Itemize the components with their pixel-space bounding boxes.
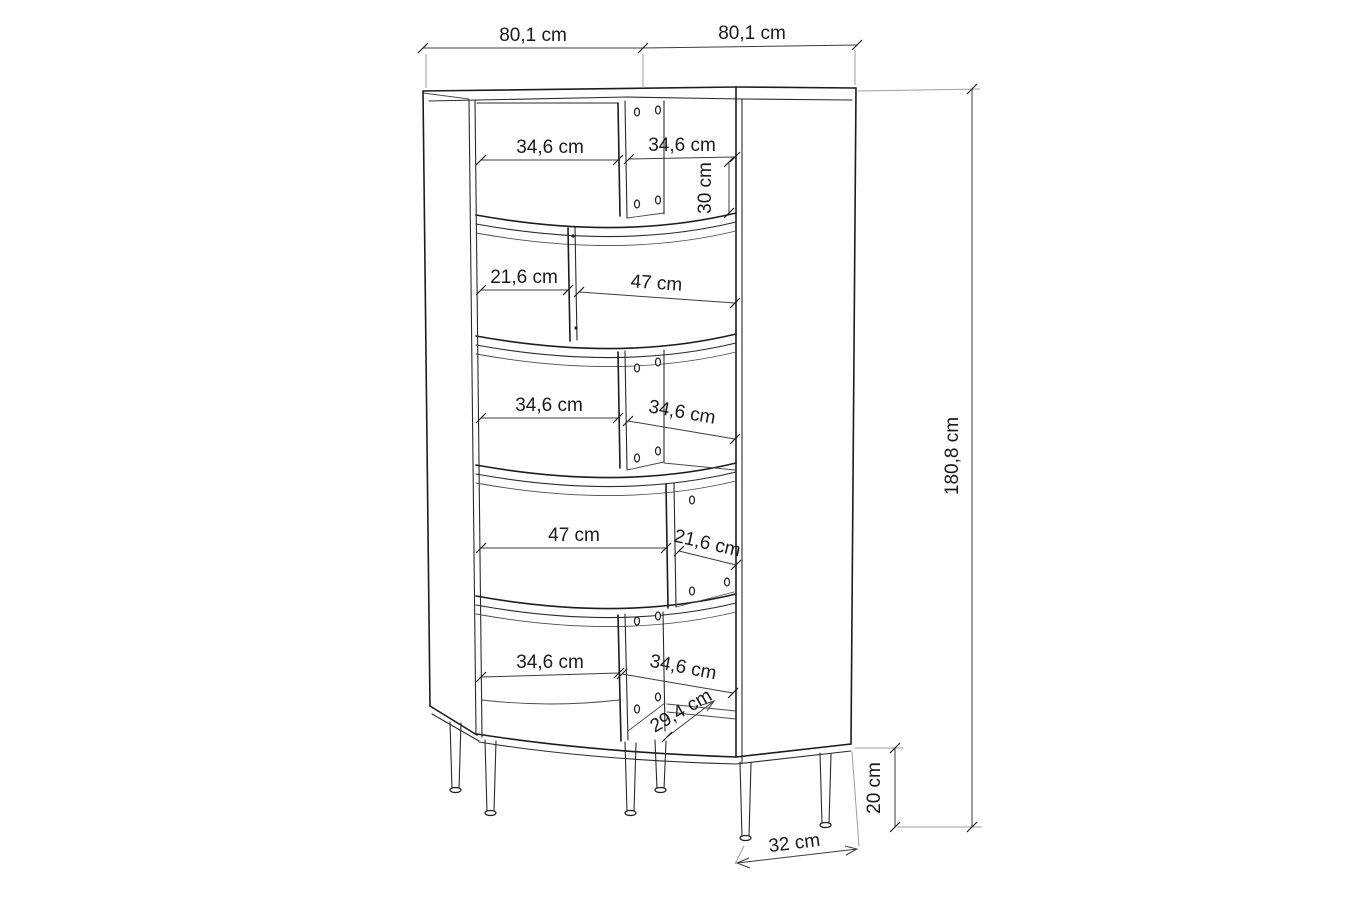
leg-5-foot (740, 836, 751, 841)
leg-3-foot (625, 811, 636, 816)
dim-label-s1-right: 34,6 cm (648, 135, 716, 156)
screw-mark (574, 326, 577, 329)
screw-hole (656, 106, 661, 114)
shelf-d-front-bottom (476, 603, 736, 618)
s3-shelf-edge-right (664, 463, 735, 470)
s3-divider-b (625, 351, 627, 470)
leg-1 (450, 722, 461, 789)
dim-label-s4-right: 21,6 cm (672, 526, 743, 562)
bottom-board-back-edge-left (482, 700, 619, 704)
screw-hole (690, 587, 695, 595)
shelf-c-front-top (476, 463, 736, 478)
dim-label-s1-height: 30 cm (695, 162, 716, 214)
bottom-curve-front-bottom (479, 742, 736, 764)
ext-depth-right (852, 752, 859, 846)
screw-hole (635, 364, 640, 372)
leg-5 (740, 762, 751, 837)
dim-label-total-height: 180,8 cm (942, 417, 963, 495)
shelf-a-back-edge (476, 231, 736, 246)
dim-label-s1-left: 34,6 cm (516, 137, 584, 158)
dim-label-s3-left: 34,6 cm (515, 395, 583, 416)
s5-divider-b (625, 614, 628, 740)
leg-2-foot (485, 811, 496, 816)
corner-bookcase-drawing: 80,1 cm 80,1 cm 180,8 cm 20 cm 32 cm 34,… (0, 0, 1360, 900)
screw-hole (656, 358, 661, 366)
shelf-c-back-edge (476, 481, 736, 496)
leg-4-foot (655, 788, 666, 793)
left-panel-bottom-edge-b (432, 714, 479, 741)
s2-divider-b (575, 227, 577, 340)
leg-2 (485, 740, 496, 812)
screw-hole (635, 705, 640, 713)
leg-1-foot (450, 788, 461, 793)
s3-panel-base (627, 462, 664, 470)
dim-label-top-left-width: 80,1 cm (499, 25, 567, 46)
ext-height-top (858, 89, 980, 91)
screw-hole (635, 454, 640, 462)
left-panel-bottom-edge-a (430, 706, 477, 735)
right-wing-bottom-edge-b (736, 751, 851, 764)
shelf-b-back-edge (476, 352, 736, 367)
top-left-cap (423, 93, 469, 99)
dim-label-s5-left: 34,6 cm (516, 652, 584, 673)
screw-hole (725, 578, 730, 586)
shelf-b-front-top (476, 334, 736, 349)
s1-divider-b (625, 101, 627, 218)
left-panel-inner-edge-a (469, 100, 476, 733)
legs (450, 722, 831, 841)
shelf-a-front-top (476, 213, 736, 228)
dim-s1-right (629, 157, 735, 159)
cabinet-outline (423, 87, 856, 764)
dim-label-s3-right: 34,6 cm (647, 396, 717, 428)
dim-s3-right (628, 421, 735, 439)
screw-hole (690, 496, 695, 504)
s4-panel-base (676, 592, 734, 607)
shelf-c-front-bottom (476, 472, 736, 487)
ext-depth-left (735, 846, 744, 864)
s3-divider-a (618, 352, 620, 468)
top-board-bottom-edge (429, 97, 852, 101)
dim-s5-left (481, 673, 619, 677)
dim-label-base-depth: 32 cm (767, 830, 821, 857)
top-edge (423, 87, 856, 91)
leg-3 (625, 742, 636, 812)
dim-label-s5-right: 34,6 cm (648, 651, 718, 685)
s2-divider-a (568, 228, 570, 341)
dim-label-top-right-width: 80,1 cm (718, 23, 786, 44)
bottom-curve-front-top (477, 734, 736, 757)
screw-hole (635, 617, 640, 625)
shelf-d-back-edge (476, 612, 736, 627)
leg-6 (820, 753, 831, 824)
screw-mark (571, 234, 574, 237)
screw-hole (656, 612, 661, 620)
technical-drawing-page: 80,1 cm 80,1 cm 180,8 cm 20 cm 32 cm 34,… (0, 0, 1360, 900)
screw-hole (635, 108, 640, 116)
leg-6-foot (820, 823, 831, 828)
shelf-a-front-bottom (476, 222, 736, 237)
dim-label-s2-right: 47 cm (630, 271, 683, 296)
dim-label-s2-left: 21,6 cm (490, 267, 558, 288)
screw-hole (656, 447, 661, 455)
s1-panel-base (627, 213, 664, 218)
shelf-b-front-bottom (476, 343, 736, 358)
screw-hole (635, 200, 640, 208)
leg-4 (655, 740, 666, 789)
left-panel-outer-edge (423, 91, 430, 706)
dim-top-right-width (643, 45, 857, 48)
right-wing-bottom-edge-a (736, 744, 851, 757)
right-panel-outer-edge (851, 88, 856, 744)
screw-hole (656, 196, 661, 204)
screw-hole (656, 693, 661, 701)
dim-label-s4-left: 47 cm (548, 525, 600, 546)
dimension-labels: 80,1 cm 80,1 cm 180,8 cm 20 cm 32 cm 34,… (490, 23, 963, 857)
dim-label-leg-height: 20 cm (864, 762, 885, 814)
